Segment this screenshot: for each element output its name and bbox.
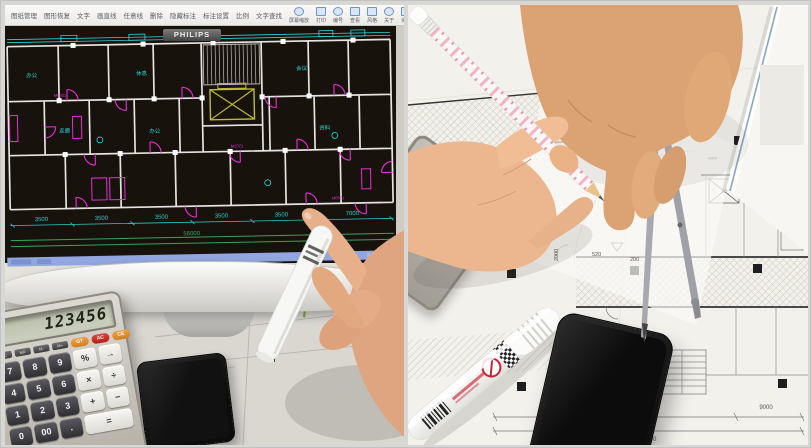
menu-item[interactable]: 隐藏标注 — [170, 10, 196, 20]
calc-key[interactable]: 9 — [47, 352, 72, 375]
about-icon — [384, 7, 394, 16]
cad-screen: 办公 休息 会议 走廊 办公 资料 M0921 M1021 M0921 3500 — [5, 26, 396, 263]
svg-text:520: 520 — [592, 252, 601, 258]
calc-key[interactable]: . — [59, 417, 84, 440]
photo-blueprint-work: 3400 9000 30700 520 200 2000 2000 — [408, 5, 808, 445]
calc-key[interactable]: 5 — [26, 378, 51, 401]
calc-key[interactable]: 00 — [34, 421, 59, 444]
cad-menu-bar: 图纸管理 图形恢复 文字 画直线 任意线 删除 隐藏标注 标注设置 比例 文字查… — [5, 5, 404, 26]
zoom-icon — [294, 7, 304, 16]
svg-text:M0921: M0921 — [332, 195, 345, 200]
menu-item[interactable]: 比例 — [236, 10, 249, 20]
svg-text:M1021: M1021 — [231, 143, 244, 148]
menu-item[interactable]: 图纸管理 — [11, 10, 37, 20]
svg-text:办公: 办公 — [149, 127, 161, 135]
calc-mem-key[interactable]: M- — [33, 344, 50, 354]
menu-item[interactable]: 文字 — [77, 10, 90, 20]
calc-mem-key[interactable]: M+ — [52, 341, 69, 351]
calc-key[interactable]: × — [76, 369, 101, 392]
menu-item[interactable]: 标注设置 — [203, 10, 229, 20]
menu-item[interactable]: 文字查找 — [256, 10, 282, 20]
svg-text:9000: 9000 — [759, 405, 773, 411]
svg-text:3500: 3500 — [35, 217, 49, 223]
calc-key[interactable]: ÷ — [101, 364, 126, 387]
menu-tool[interactable]: 资料 — [401, 7, 404, 24]
photo-cad-workstation: 图纸管理 图形恢复 文字 画直线 任意线 删除 隐藏标注 标注设置 比例 文字查… — [5, 5, 404, 445]
calc-key[interactable]: 8 — [22, 356, 47, 379]
calc-key[interactable]: 7 — [5, 360, 23, 383]
menu-tool[interactable]: 风格 — [367, 7, 377, 24]
menu-item[interactable]: 删除 — [150, 10, 163, 20]
calc-key[interactable]: 4 — [5, 382, 27, 405]
cad-walls — [7, 39, 393, 209]
svg-text:3500: 3500 — [215, 213, 229, 219]
calc-key[interactable]: 1 — [5, 404, 30, 427]
calc-key[interactable]: % — [72, 347, 97, 370]
calc-ac-key[interactable]: AC — [91, 332, 110, 344]
elevator-symbol — [210, 83, 255, 120]
menu-item[interactable]: 任意线 — [124, 10, 144, 20]
svg-text:7000: 7000 — [346, 211, 360, 217]
menu-tool[interactable]: 查看 — [350, 7, 360, 24]
svg-text:3500: 3500 — [275, 212, 289, 218]
smartphone-left — [136, 352, 236, 445]
svg-text:资料: 资料 — [319, 123, 331, 131]
photo-collage-frame: 图纸管理 图形恢复 文字 画直线 任意线 删除 隐藏标注 标注设置 比例 文字查… — [0, 0, 811, 448]
number-icon — [333, 7, 343, 16]
calc-mem-key[interactable]: MR — [14, 347, 31, 357]
door-tags: M0921 M1021 M0921 — [54, 87, 345, 206]
style-icon — [367, 7, 377, 16]
calc-key[interactable]: 0 — [9, 425, 34, 445]
svg-text:3500: 3500 — [95, 216, 109, 222]
calc-gt-key[interactable]: GT — [70, 336, 89, 348]
svg-text:会议: 会议 — [296, 64, 308, 72]
calc-key[interactable]: 6 — [51, 373, 76, 396]
calc-ce-key[interactable]: CE — [112, 329, 131, 341]
menu-tool[interactable]: 编号 — [333, 7, 343, 24]
menu-item[interactable]: 画直线 — [97, 10, 117, 20]
print-icon — [316, 7, 326, 16]
menu-tool[interactable]: 关于 — [384, 7, 394, 24]
view-icon — [350, 7, 360, 16]
calc-key[interactable]: 2 — [30, 399, 55, 422]
stairs — [203, 44, 260, 85]
monitor-brand-badge: PHILIPS — [163, 29, 221, 41]
calc-key[interactable]: 3 — [55, 395, 80, 418]
svg-text:56000: 56000 — [183, 231, 200, 237]
calc-key[interactable]: + — [80, 390, 105, 413]
menu-tool[interactable]: 屏幕缩放 — [289, 7, 309, 24]
column-squares — [56, 38, 358, 158]
cad-floorplan: 办公 休息 会议 走廊 办公 资料 M0921 M1021 M0921 3500 — [5, 22, 398, 266]
svg-text:休息: 休息 — [136, 69, 148, 77]
dimension-band: 3500 3500 3500 3500 3500 7000 56000 — [10, 210, 393, 246]
calc-key[interactable]: − — [105, 386, 130, 409]
docs-icon — [401, 7, 404, 16]
menu-item[interactable]: 图形恢复 — [44, 10, 70, 20]
svg-text:办公: 办公 — [26, 71, 38, 79]
menu-tool[interactable]: 打印 — [316, 7, 326, 24]
svg-text:200: 200 — [630, 257, 639, 263]
calc-equals-key[interactable]: = — [84, 408, 134, 435]
svg-text:2000: 2000 — [554, 221, 560, 233]
svg-text:3500: 3500 — [155, 215, 169, 221]
svg-text:走廊: 走廊 — [59, 126, 71, 134]
svg-text:M0921: M0921 — [54, 93, 67, 98]
calc-key[interactable]: → — [97, 343, 122, 366]
svg-text:2000: 2000 — [554, 249, 560, 261]
calc-mem-key[interactable]: MC — [5, 351, 12, 361]
